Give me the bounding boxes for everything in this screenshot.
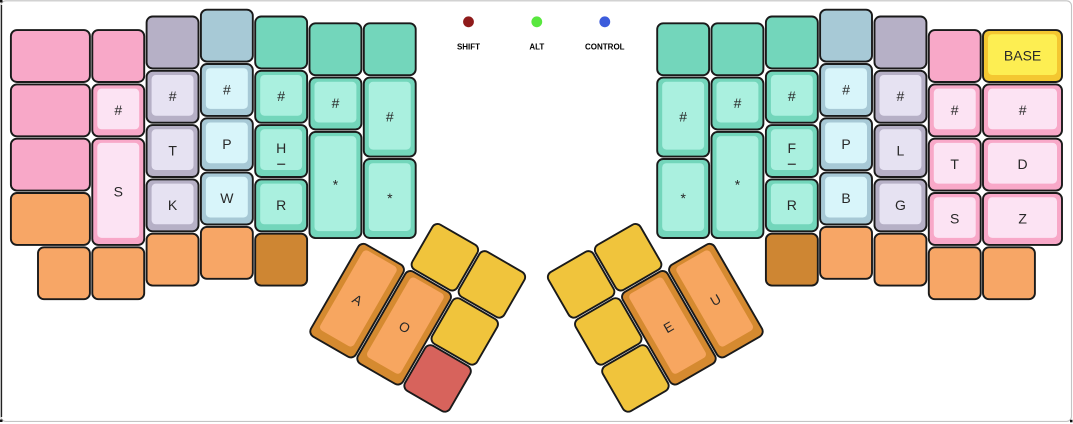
svg-text:#: # <box>788 88 796 104</box>
svg-text:W: W <box>220 190 234 206</box>
svg-text:#: # <box>679 109 687 125</box>
svg-text:#: # <box>897 88 905 104</box>
svg-text:G: G <box>895 197 906 213</box>
svg-text:S: S <box>950 210 959 226</box>
svg-text:R: R <box>276 197 286 213</box>
svg-text:#: # <box>223 82 231 98</box>
svg-text:BASE: BASE <box>1004 48 1041 64</box>
svg-text:#: # <box>951 102 959 118</box>
svg-text:S: S <box>114 183 123 199</box>
svg-text:K: K <box>168 197 178 213</box>
svg-text:F: F <box>788 140 797 156</box>
svg-text:Z: Z <box>1018 210 1027 226</box>
svg-text:D: D <box>1018 156 1028 172</box>
svg-text:CONTROL: CONTROL <box>585 43 625 52</box>
svg-text:P: P <box>222 136 231 152</box>
svg-text:*: * <box>735 177 741 193</box>
svg-text:#: # <box>842 82 850 98</box>
svg-text:*: * <box>387 190 393 206</box>
svg-text:#: # <box>114 102 122 118</box>
svg-text:SHIFT: SHIFT <box>457 43 480 52</box>
svg-text:B: B <box>841 190 850 206</box>
svg-text:*: * <box>333 177 339 193</box>
svg-text:#: # <box>277 88 285 104</box>
svg-text:R: R <box>787 197 797 213</box>
svg-text:T: T <box>168 143 177 159</box>
svg-text:#: # <box>1019 102 1027 118</box>
svg-text:ALT: ALT <box>529 43 544 52</box>
svg-text:L: L <box>897 143 905 159</box>
svg-text:#: # <box>169 88 177 104</box>
svg-text:#: # <box>734 95 742 111</box>
svg-text:T: T <box>950 156 959 172</box>
svg-text:#: # <box>386 109 394 125</box>
svg-text:#: # <box>332 95 340 111</box>
svg-text:H: H <box>276 140 286 156</box>
svg-text:P: P <box>841 136 850 152</box>
svg-text:*: * <box>680 190 686 206</box>
